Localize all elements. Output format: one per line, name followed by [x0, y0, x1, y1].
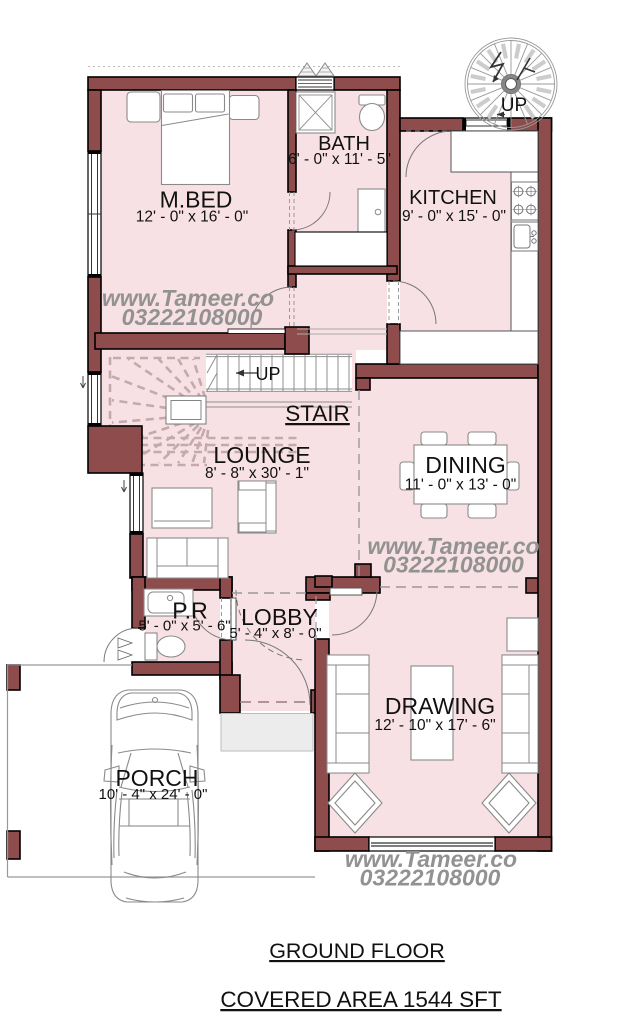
svg-text:6' - 0" x 11' - 5": 6' - 0" x 11' - 5": [288, 151, 391, 168]
svg-text:UP: UP: [255, 364, 280, 384]
svg-text:8' - 8" x 30' - 1": 8' - 8" x 30' - 1": [205, 465, 309, 482]
svg-text:12' - 10" x 17' - 6": 12' - 10" x 17' - 6": [374, 717, 495, 734]
svg-text:11' - 0" x 13' - 0": 11' - 0" x 13' - 0": [405, 477, 516, 494]
svg-text:03222108000: 03222108000: [383, 552, 524, 578]
svg-text:10' - 4" x 24' - 0": 10' - 4" x 24' - 0": [99, 786, 208, 803]
svg-text:KITCHEN: KITCHEN: [409, 187, 497, 209]
svg-text:COVERED AREA 1544 SFT: COVERED AREA 1544 SFT: [220, 987, 502, 1012]
svg-text:DINING: DINING: [425, 452, 506, 478]
svg-text:DRAWING: DRAWING: [385, 693, 495, 719]
svg-text:5' - 0" x 5' - 6": 5' - 0" x 5' - 6": [138, 618, 230, 635]
svg-text:STAIR: STAIR: [285, 401, 350, 426]
svg-text:9' - 0" x 15' - 0": 9' - 0" x 15' - 0": [402, 208, 506, 225]
svg-text:03222108000: 03222108000: [360, 865, 501, 891]
svg-text:5' - 4" x 8' - 0": 5' - 4" x 8' - 0": [229, 625, 321, 642]
svg-text:GROUND FLOOR: GROUND FLOOR: [269, 939, 445, 963]
svg-text:03222108000: 03222108000: [122, 304, 263, 330]
svg-text:UP: UP: [501, 95, 527, 116]
svg-text:12' - 0" x 16' - 0": 12' - 0" x 16' - 0": [136, 209, 249, 226]
